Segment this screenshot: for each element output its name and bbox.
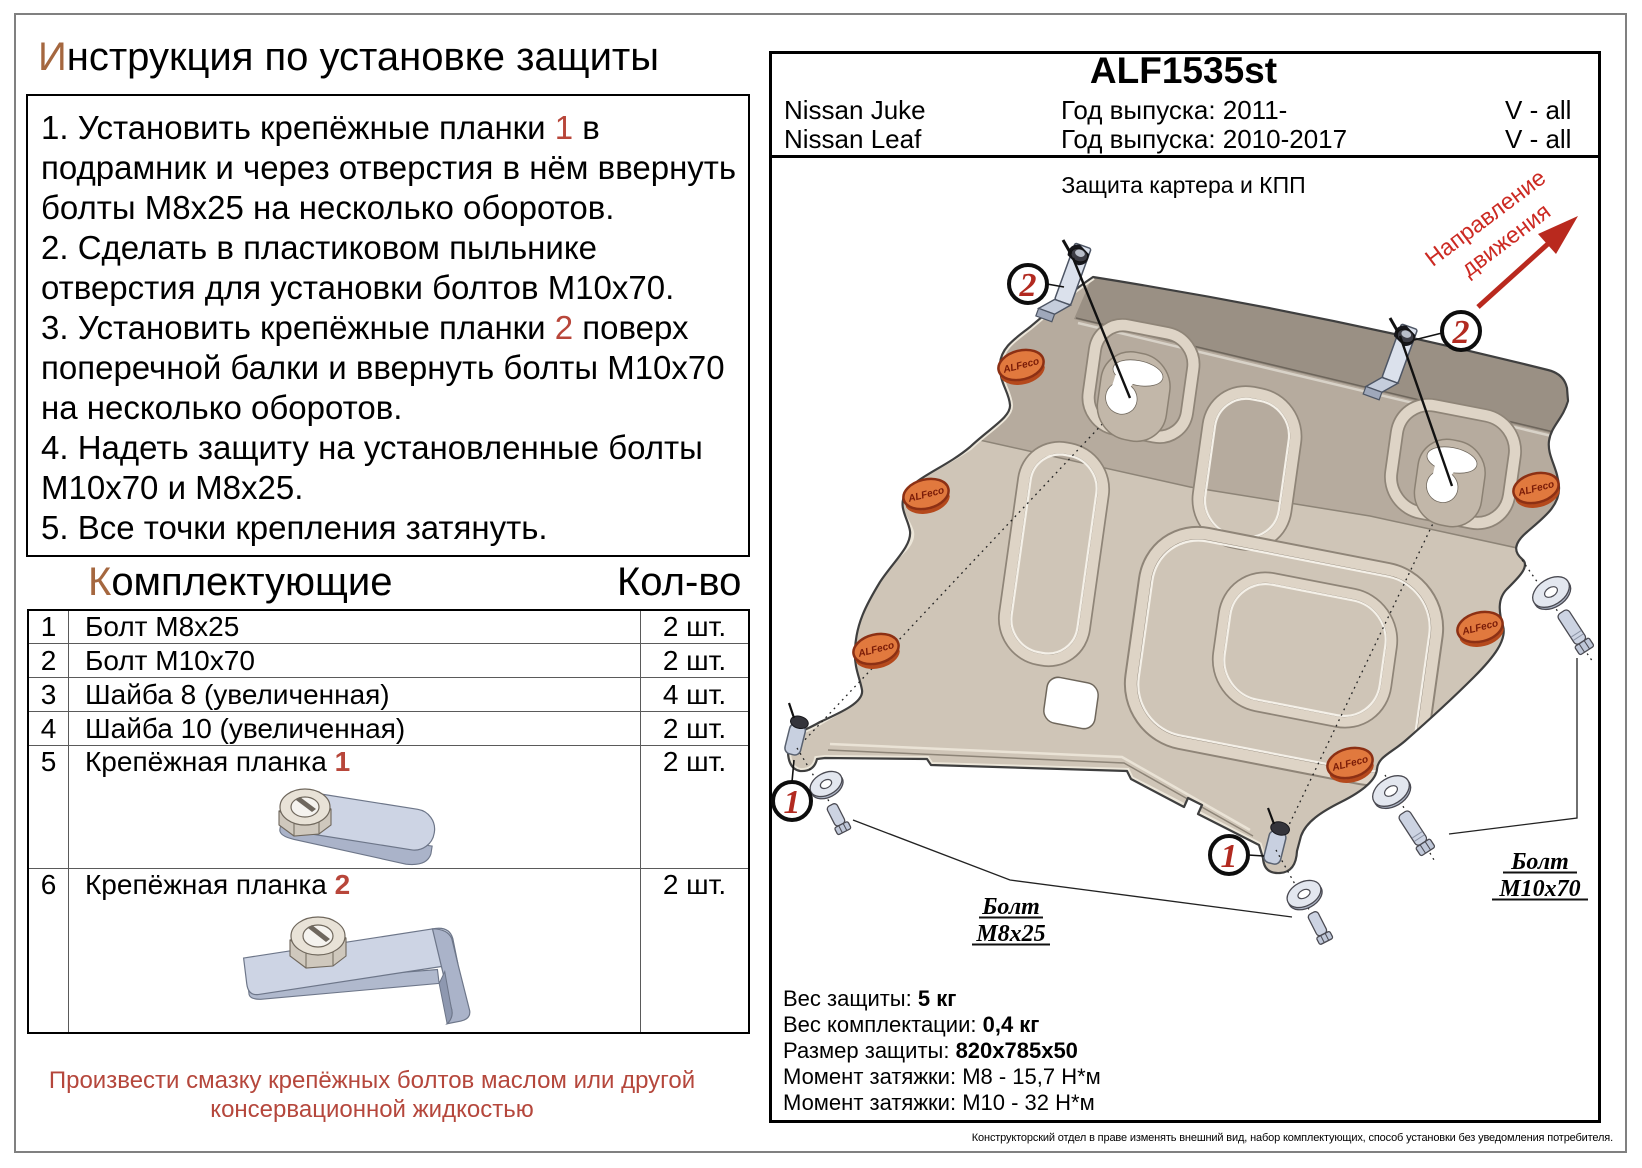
svg-text:М10х70: М10х70	[1498, 876, 1580, 902]
svg-text:2: 2	[1019, 267, 1037, 304]
svg-text:1: 1	[784, 784, 801, 821]
svg-text:Болт: Болт	[981, 894, 1040, 920]
svg-text:Болт: Болт	[1510, 849, 1569, 875]
svg-text:2: 2	[1452, 314, 1470, 351]
svg-text:М8х25: М8х25	[975, 921, 1045, 947]
svg-text:1: 1	[1221, 838, 1238, 875]
